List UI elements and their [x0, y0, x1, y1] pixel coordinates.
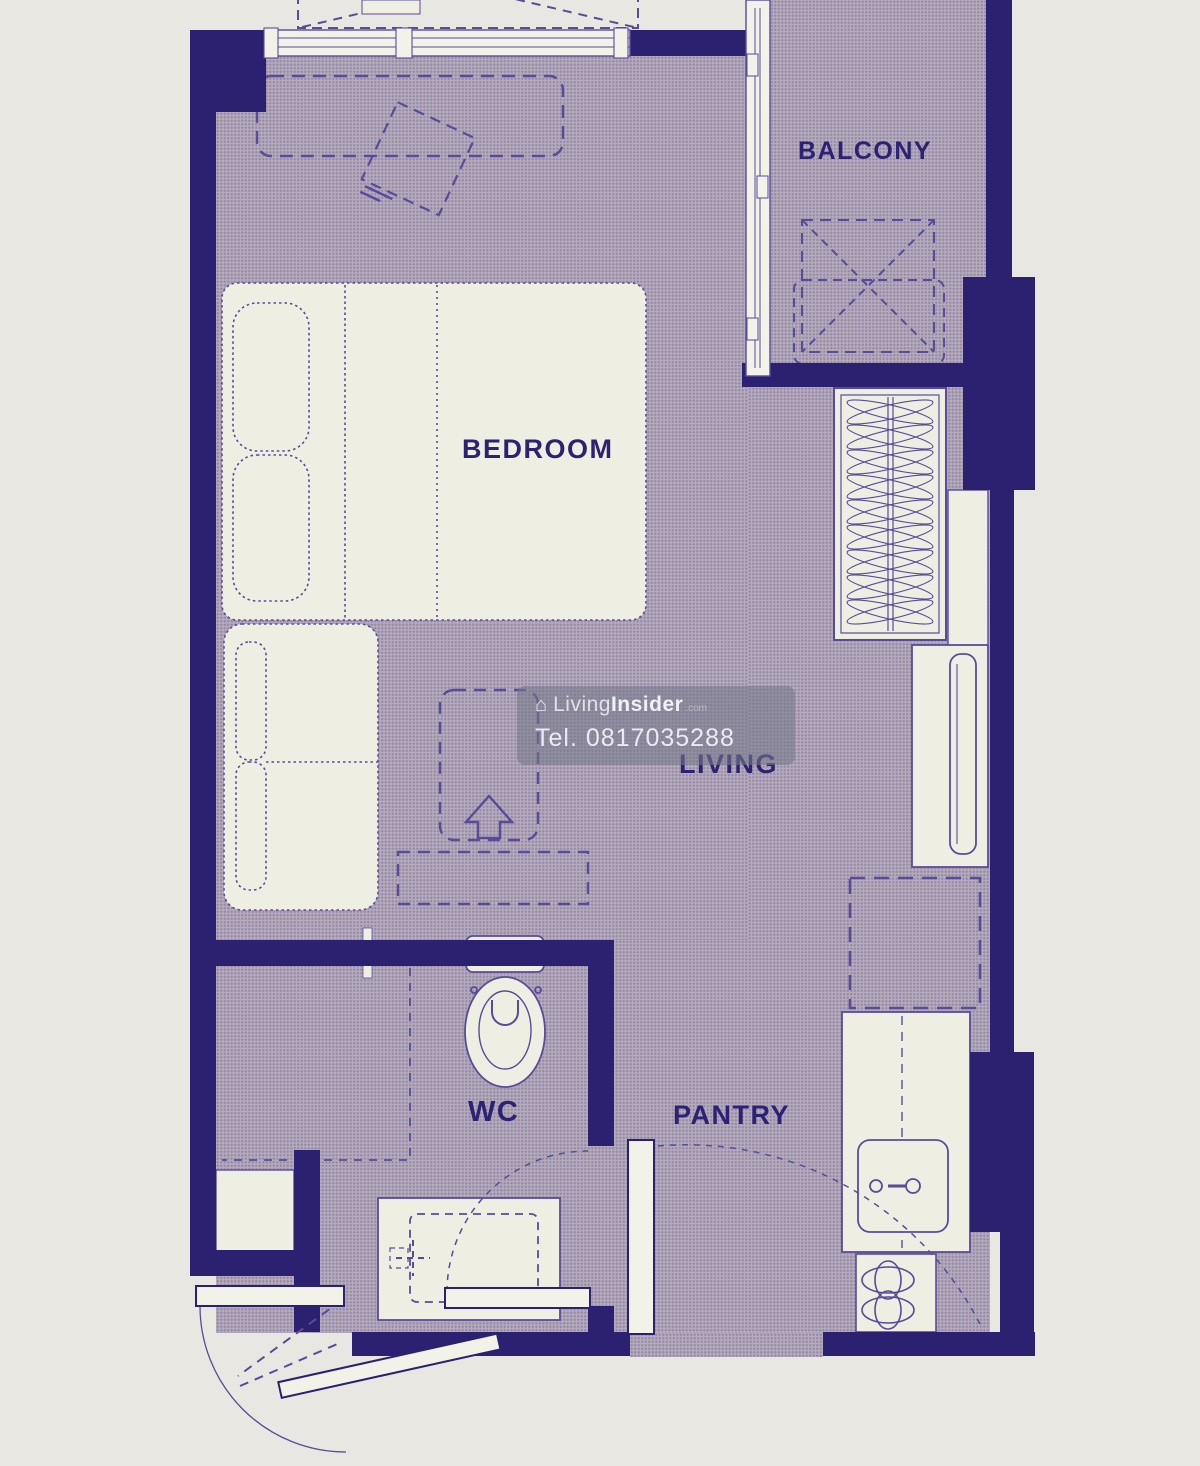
sofa	[224, 624, 378, 910]
flat-tv	[950, 654, 976, 854]
tv-console	[912, 645, 988, 867]
bedroom-label: BEDROOM	[462, 434, 614, 465]
pantry-label: PANTRY	[673, 1100, 790, 1131]
shaft-niche	[216, 1170, 294, 1252]
kitchen-counter	[842, 1012, 970, 1252]
pillow	[233, 455, 309, 601]
balcony-label: BALCONY	[798, 137, 932, 166]
wall-left	[190, 30, 216, 1258]
desk-dashed-outline	[257, 76, 563, 156]
wc-label: WC	[468, 1096, 519, 1129]
sideboard-dashed	[398, 852, 588, 904]
shower-partition-dashed	[222, 968, 410, 1160]
wall-wc-top	[216, 940, 590, 966]
wc-door-leaf	[445, 1288, 590, 1308]
wall-niche-bottom	[190, 1250, 294, 1276]
watermark-brand-bold: Insider	[611, 692, 683, 718]
wall-top-mid	[628, 30, 748, 56]
wall-balcony-right	[986, 0, 1012, 314]
wall-corner-top-left	[190, 30, 266, 112]
wall-wc-right-upper	[588, 940, 614, 1146]
ac-condenser-balcony	[794, 220, 944, 364]
wall-recess	[948, 490, 988, 648]
wall-right-upper	[990, 490, 1014, 1052]
floor-plan: BALCONY BEDROOM LIVING WC PANTRY ⌂ Livin…	[0, 0, 1200, 1466]
wall-bottom-right	[823, 1332, 1035, 1356]
wall-right-thick	[970, 1052, 1034, 1232]
watermark-brand-light: Living	[553, 692, 611, 718]
pillow	[233, 303, 309, 451]
up-arrow-marker	[466, 796, 512, 838]
ac-ledge-top	[298, 0, 638, 28]
watermark-phone: Tel. 0817035288	[535, 724, 795, 753]
watermark-brand-suffix: .com	[685, 696, 707, 722]
chair-dashed-outline	[357, 102, 475, 226]
sliding-door-balcony	[746, 0, 770, 376]
cooktop-hob	[856, 1254, 936, 1332]
wall-wc-right-stub	[588, 1306, 614, 1334]
kitchen-sink	[858, 1140, 948, 1232]
window-top	[264, 28, 630, 58]
watermark: ⌂ Living Insider .com Tel. 0817035288	[517, 686, 795, 765]
wardrobe-with-hangers	[834, 388, 946, 640]
fridge-space-dashed	[850, 878, 980, 1008]
top-sill-block	[362, 0, 420, 14]
entrance-door-leaf	[628, 1140, 654, 1334]
living-insider-logo-icon: ⌂	[535, 692, 547, 718]
wall-balcony-bottom	[742, 363, 988, 387]
